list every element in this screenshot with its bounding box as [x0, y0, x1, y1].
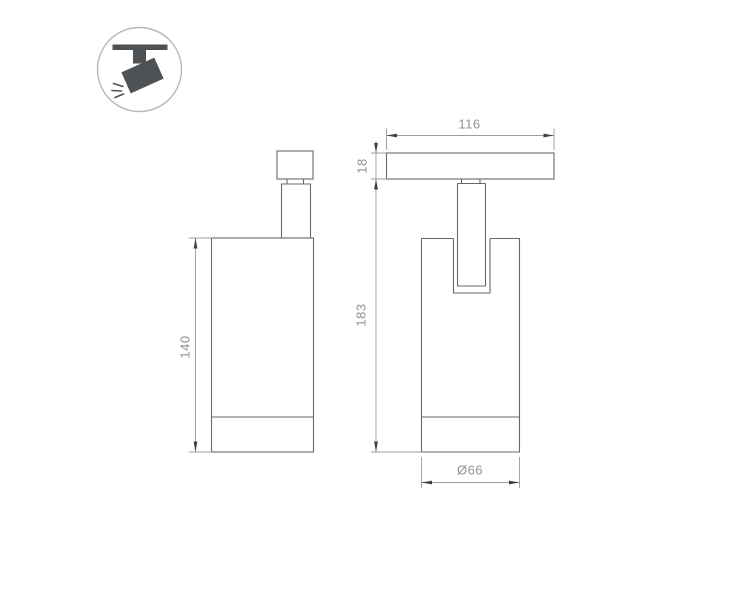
front-body: [422, 239, 520, 453]
front-track-plate: [387, 153, 555, 179]
track-light-icon: [98, 28, 182, 112]
side-neck: [287, 179, 304, 184]
dim-116-extension-lines: [387, 129, 555, 151]
side-view: [212, 151, 314, 452]
icon-stem: [133, 50, 146, 64]
front-view: [387, 153, 555, 452]
side-body: [212, 238, 314, 452]
front-neck: [462, 179, 481, 184]
dim-116-label: 116: [458, 117, 480, 132]
drawing-linework: [0, 0, 734, 600]
side-track-adapter: [277, 151, 313, 179]
dim-183-label: 183: [354, 303, 369, 326]
dim-116: [387, 129, 555, 151]
icon-track-bar: [113, 45, 168, 51]
dim-140-label: 140: [178, 335, 193, 358]
front-yoke-slot: [454, 239, 491, 294]
dim-18-183-extension-lines: [371, 153, 422, 452]
front-stem: [458, 184, 486, 287]
side-stem: [282, 184, 311, 238]
dim-18-and-183: [371, 141, 422, 452]
dim-18-label: 18: [355, 158, 370, 173]
dimension-drawing: 140 116 18 183 Ø66: [0, 0, 734, 600]
dim-66-label: Ø66: [457, 463, 483, 478]
